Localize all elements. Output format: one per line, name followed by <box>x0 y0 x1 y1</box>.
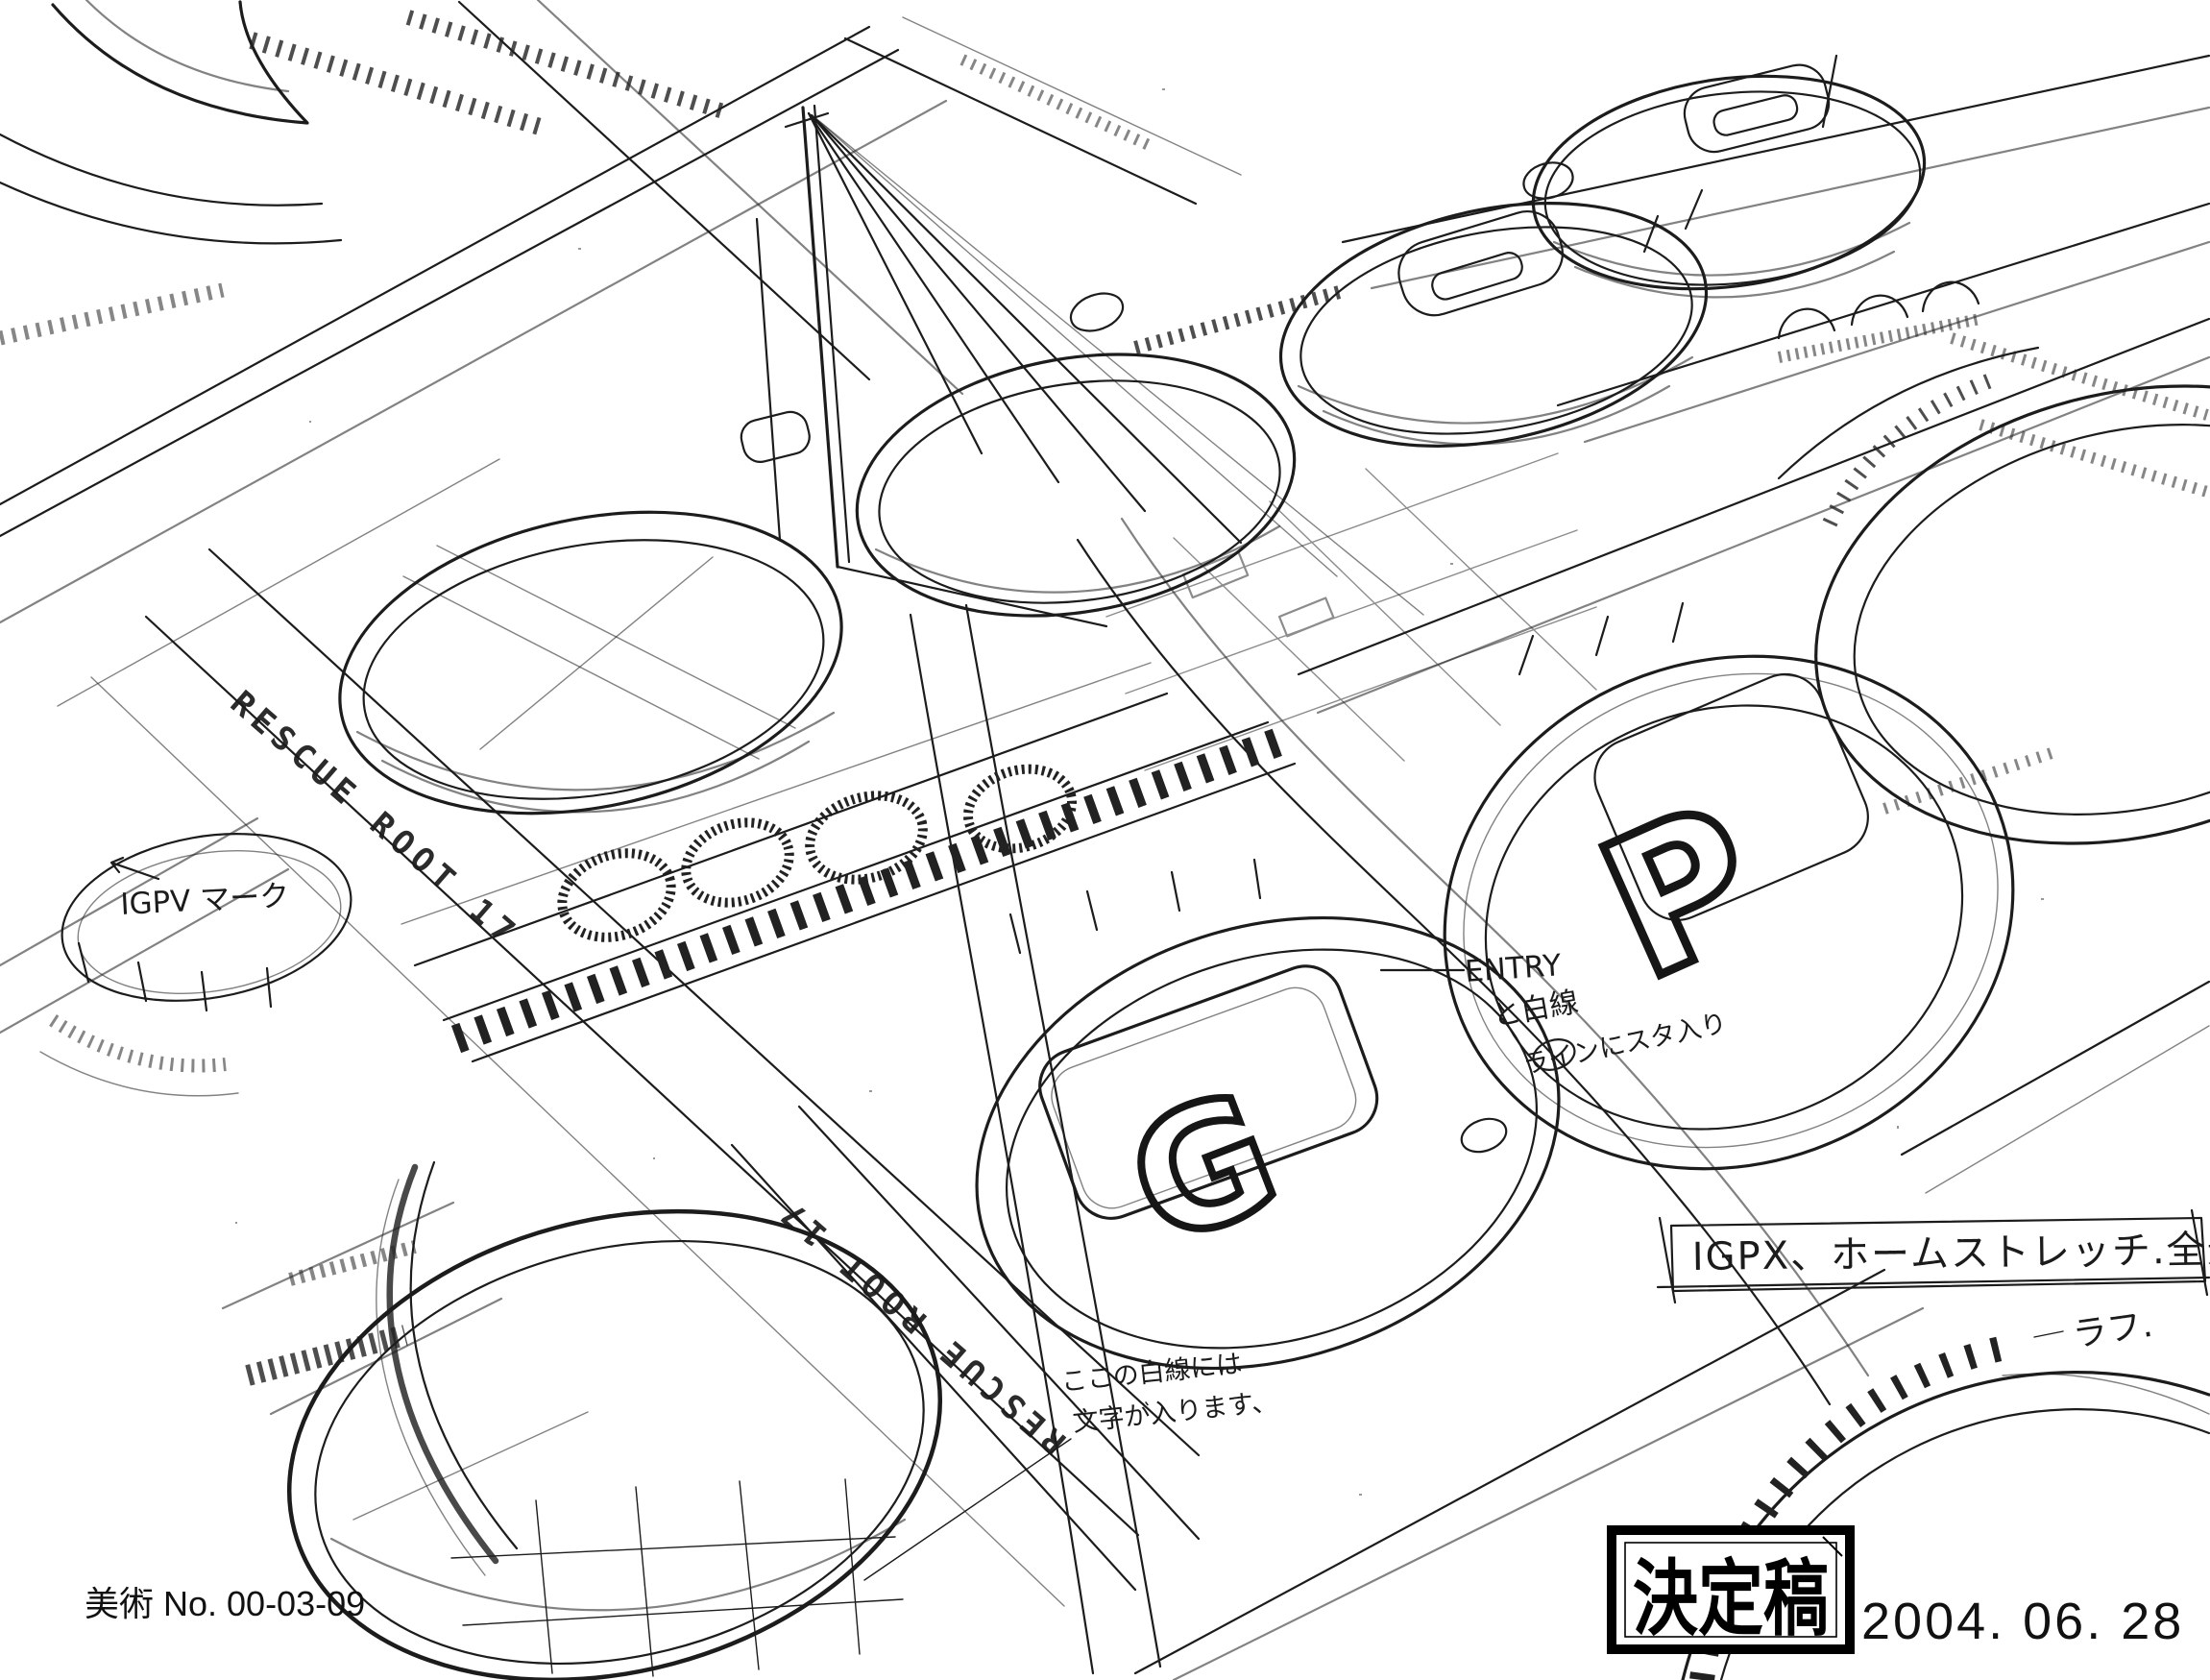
sheet-number: 美術 No. 00-03-09 <box>85 1584 365 1623</box>
pod-igpx-mark <box>40 813 364 1096</box>
stamp-text: 決定稿 <box>1633 1553 1829 1645</box>
note-white-line-1: ここの白線には <box>1059 1349 1243 1398</box>
road-label-rescue-lower: RESCUE ROOT 17 <box>769 1190 1073 1461</box>
arcade-arches <box>1779 282 1980 357</box>
pod-second-top <box>1258 167 1729 482</box>
stamp-date: 2004. 06. 28 <box>1861 1593 2184 1650</box>
pod-center-sail <box>738 287 1315 648</box>
note-entry-1: ENTRY <box>1464 948 1563 989</box>
production-sketch-sheet: RESCUE ROOT 17 RESCUE ROOT 17 G P IGPV マ… <box>0 0 2210 1680</box>
pod-left <box>312 469 870 857</box>
pod-garage-g <box>918 845 1618 1441</box>
title-box-text: IGPX、ホームストレッチ.全景 <box>1691 1228 2210 1279</box>
note-entry-2: と白線 <box>1490 986 1581 1034</box>
hatch-strips <box>0 17 2207 1376</box>
note-igpx-mark: IGPV マーク <box>120 879 291 922</box>
striped-crossing-band <box>401 663 1295 1061</box>
title-box: IGPX、ホームストレッチ.全景 ラフ. <box>1658 1210 2210 1355</box>
approval-stamp: 決定稿 <box>1612 1530 1850 1649</box>
pod-top-right <box>1519 53 1938 313</box>
sketch-canvas: RESCUE ROOT 17 RESCUE ROOT 17 G P IGPV マ… <box>0 0 2210 1680</box>
handwritten-notes: IGPV マーク ENTRY と白線 ラインにスタ入り ここの白線には 文字が入… <box>111 858 1730 1580</box>
note-rough: ラフ. <box>2071 1305 2155 1355</box>
plaza-grid <box>1106 453 1596 770</box>
note-white-line-2: 文字が入ります、 <box>1071 1387 1278 1438</box>
pad-letter-p: P <box>1572 762 1792 1023</box>
pad-letter-g: G <box>1105 1055 1301 1283</box>
mast-and-cables <box>757 106 1423 626</box>
